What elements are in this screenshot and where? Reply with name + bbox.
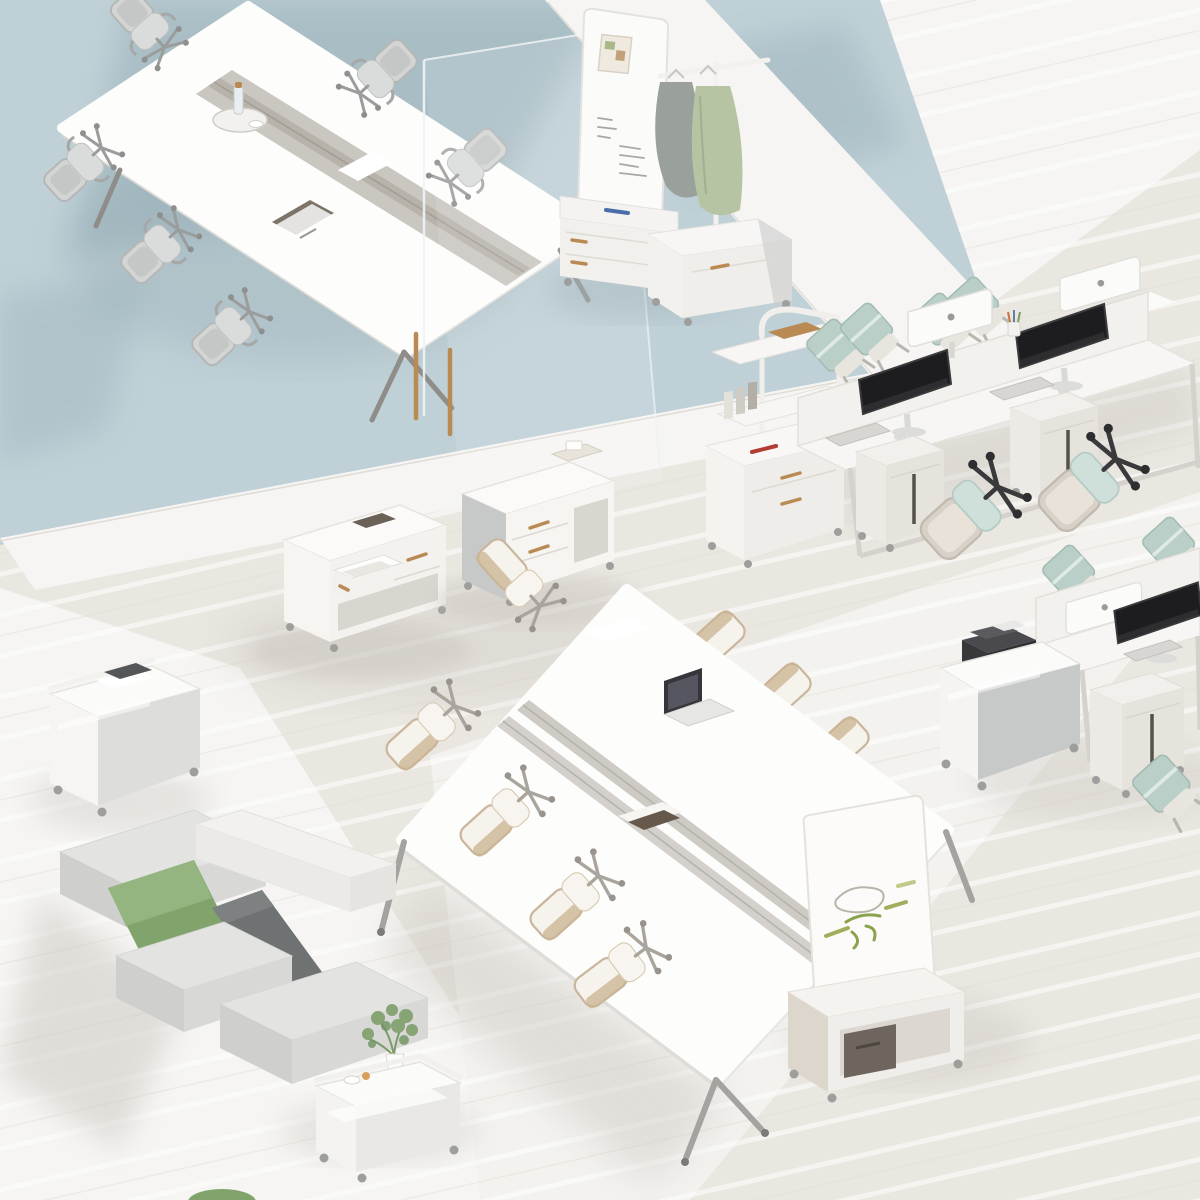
office-scene (0, 0, 1200, 1200)
pinned-photo (598, 35, 632, 74)
open-shelf (574, 498, 608, 563)
showroom-render (0, 0, 1200, 1200)
